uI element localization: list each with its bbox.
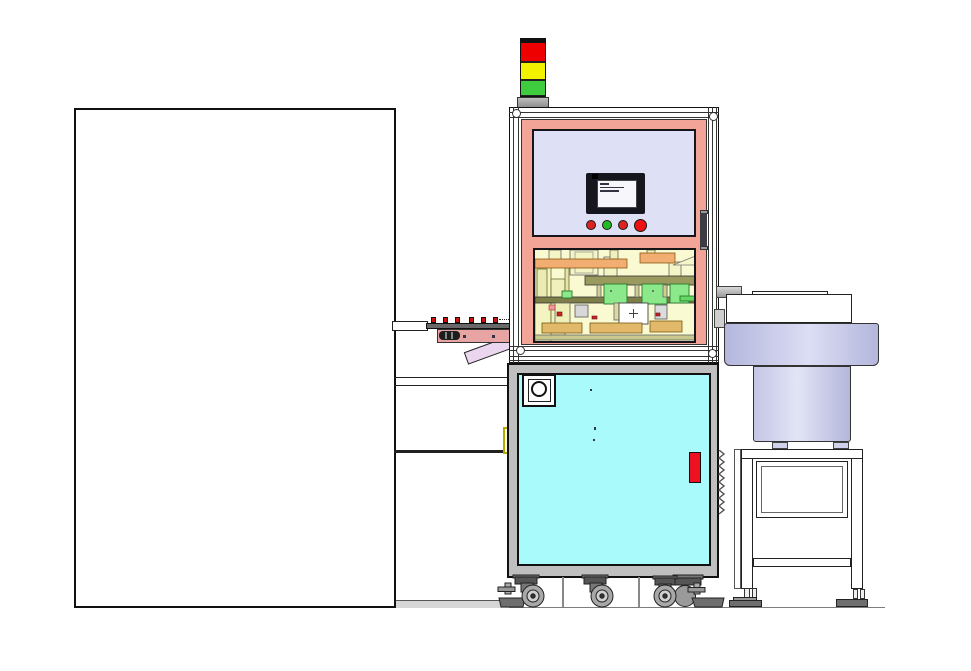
emergency-stop-button [634,219,647,232]
stack-light-yellow [521,63,545,79]
frame-line [518,107,519,363]
stand-crossbar [753,558,851,567]
frame-bolt [516,346,525,355]
bowl-foot [833,442,849,449]
stand-leg [851,458,863,589]
stack-light [520,38,546,97]
shelf-line [394,385,510,387]
conveyor-motor-ring [445,332,447,339]
red-pushbutton [586,220,596,230]
stand-top-plate [741,449,863,459]
frame-line [509,350,719,351]
conveyor-part [455,317,460,323]
hmi-corner-chip [592,174,598,179]
cable-chain [713,450,725,518]
frame-line [509,356,719,357]
conveyor-end-cap [392,321,428,331]
conveyor-motor-ring [451,332,453,339]
stand-foot-stem [853,589,858,599]
red-pushbutton [618,220,628,230]
cad-drawing [0,0,971,671]
mechanism-graphic [535,250,696,343]
stand-foot-stem [860,589,865,599]
shelf-line [394,377,510,379]
conveyor-part [443,317,448,323]
conveyor-mark [492,335,495,338]
stand-panel-inner [761,466,843,513]
hmi-screen-text [600,187,624,189]
enclosure-door-handle [700,213,707,249]
vibratory-bowl [724,323,879,366]
stand-foot-pad [729,600,762,607]
casters [495,574,740,608]
hmi-screen-text [600,183,609,185]
conveyor-mark [463,335,466,338]
frame-line [509,346,719,347]
ground-strip [396,600,509,608]
stand-rear-leg [734,449,741,589]
hmi-screen-text [600,190,619,192]
red-door-handle [689,452,701,483]
frame-line [712,107,713,363]
green-pushbutton [602,220,612,230]
conveyor-part [431,317,436,323]
frame-line [708,107,709,363]
door-dot [590,389,592,391]
stack-light-pedestal [517,97,549,108]
frame-bolt [709,112,718,121]
assembly-mechanism-bay [533,248,696,343]
stack-light-red [521,43,545,61]
frame-line [509,117,719,118]
conveyor-part [469,317,474,323]
door-dot [594,427,596,430]
stand-leg [741,458,753,589]
stack-light-green [521,81,545,96]
enclosure-door-handle-cap [700,246,708,250]
frame-line [513,107,514,363]
conveyor-motor [439,331,460,340]
adjacent-machine-outline [74,108,396,608]
frame-bolt [512,109,521,118]
frame-line [509,360,719,361]
stand-foot-pad [836,599,868,607]
frame-line [509,112,719,113]
round-vent [531,381,547,397]
shelf-line [394,450,510,453]
door-dot [593,439,595,441]
bowl-top-box [726,294,852,323]
conveyor-part [493,317,498,323]
frame-bolt [708,349,717,358]
bowl-base-cylinder [753,366,851,442]
conveyor-part [481,317,486,323]
bowl-foot [772,442,788,449]
